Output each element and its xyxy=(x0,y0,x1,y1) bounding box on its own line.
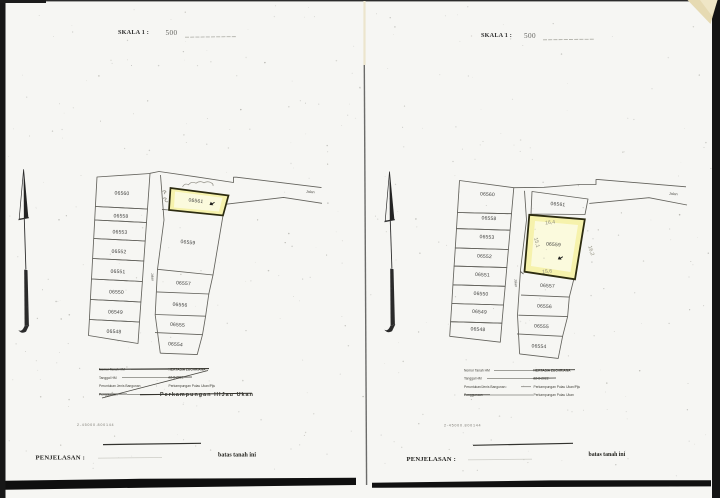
svg-text:06555: 06555 xyxy=(170,322,185,329)
svg-text:06551: 06551 xyxy=(475,272,490,279)
svg-text:06560: 06560 xyxy=(480,191,495,198)
svg-text:500: 500 xyxy=(524,32,536,40)
svg-text:2-45000.800144: 2-45000.800144 xyxy=(444,424,481,428)
svg-text:Tanggal HM: Tanggal HM xyxy=(99,376,117,380)
svg-text:06554: 06554 xyxy=(531,343,546,350)
svg-text:06558: 06558 xyxy=(113,213,128,220)
svg-text:batas tanah ini: batas tanah ini xyxy=(589,452,626,458)
svg-text:06556: 06556 xyxy=(537,303,552,310)
svg-text:Tanggal HM: Tanggal HM xyxy=(464,377,482,381)
svg-text:batas tanah ini: batas tanah ini xyxy=(218,453,256,459)
svg-text:Perkampungan Pulau Ukan/Piju: Perkampungan Pulau Ukan/Piju xyxy=(169,384,216,388)
svg-text:06555: 06555 xyxy=(534,323,549,330)
svg-text:Peruntukan/Jenis Bangunan :: Peruntukan/Jenis Bangunan : xyxy=(464,385,507,389)
svg-text:06557: 06557 xyxy=(540,283,555,290)
svg-text:SKALA 1 :: SKALA 1 : xyxy=(118,29,149,36)
svg-text:Nomor Tanah HM: Nomor Tanah HM xyxy=(464,369,490,373)
svg-text:06550: 06550 xyxy=(109,289,124,296)
svg-text:06557: 06557 xyxy=(176,280,191,287)
svg-text:2-45000.800144: 2-45000.800144 xyxy=(77,423,114,427)
svg-text:06552: 06552 xyxy=(477,253,492,260)
svg-text:06553: 06553 xyxy=(112,229,127,236)
svg-text:06549: 06549 xyxy=(108,309,123,316)
svg-text:06550: 06550 xyxy=(473,291,488,298)
svg-text:PENJELASAN :: PENJELASAN : xyxy=(36,454,85,461)
svg-text:Perkampungan Pulau Ukan/Piju: Perkampungan Pulau Ukan/Piju xyxy=(534,385,581,389)
svg-text:15,6: 15,6 xyxy=(542,268,553,275)
svg-text:SKALA 1 :: SKALA 1 : xyxy=(481,32,512,39)
svg-text:06560: 06560 xyxy=(114,191,129,198)
svg-text:06549: 06549 xyxy=(472,309,487,316)
svg-text:500: 500 xyxy=(166,29,178,37)
svg-text:06559: 06559 xyxy=(546,241,561,248)
svg-text:06561: 06561 xyxy=(550,201,565,208)
svg-text:16,4: 16,4 xyxy=(545,219,556,226)
svg-text:Jalan: Jalan xyxy=(306,190,315,195)
svg-text:Jalan: Jalan xyxy=(514,279,518,287)
svg-text:Jalan: Jalan xyxy=(669,192,678,197)
svg-text:06551: 06551 xyxy=(110,269,125,276)
svg-text:06554: 06554 xyxy=(168,341,183,348)
svg-text:06553: 06553 xyxy=(479,234,494,241)
svg-text:06552: 06552 xyxy=(111,249,126,256)
svg-text::: : xyxy=(156,384,157,388)
svg-text:06548: 06548 xyxy=(470,326,485,333)
svg-text:06556: 06556 xyxy=(172,302,187,309)
svg-text:Peruntukan Jenis Bangunan: Peruntukan Jenis Bangunan xyxy=(99,384,141,388)
svg-text:06558: 06558 xyxy=(481,215,496,222)
svg-text:Perkampungan Pulau Ukan: Perkampungan Pulau Ukan xyxy=(534,393,574,397)
svg-text:PENJELASAN :: PENJELASAN : xyxy=(407,456,456,463)
svg-text:06548: 06548 xyxy=(106,329,121,336)
svg-text:Jalan: Jalan xyxy=(150,273,155,281)
